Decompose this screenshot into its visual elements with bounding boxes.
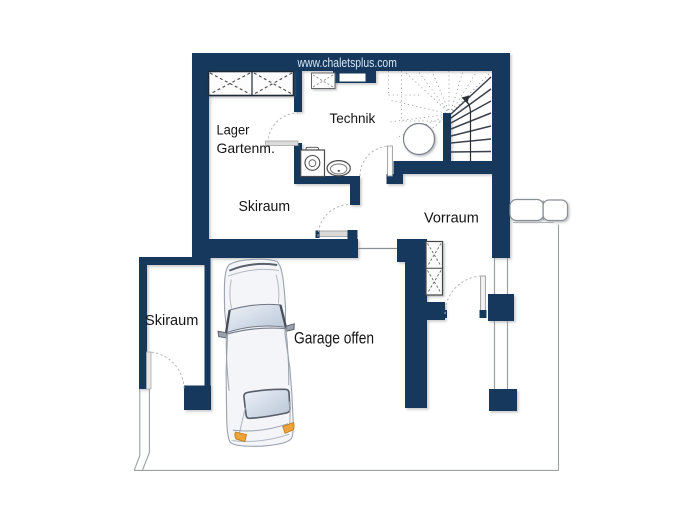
svg-text:Gartenm.: Gartenm. xyxy=(217,140,275,156)
svg-text:Technik: Technik xyxy=(330,111,376,126)
svg-text:Vorraum: Vorraum xyxy=(424,211,479,227)
svg-text:Garage offen: Garage offen xyxy=(294,329,374,348)
svg-text:Lager: Lager xyxy=(217,122,250,138)
svg-text:www.chaletsplus.com: www.chaletsplus.com xyxy=(297,56,397,70)
svg-text:Skiraum: Skiraum xyxy=(145,313,198,329)
svg-text:Skiraum: Skiraum xyxy=(239,199,291,215)
